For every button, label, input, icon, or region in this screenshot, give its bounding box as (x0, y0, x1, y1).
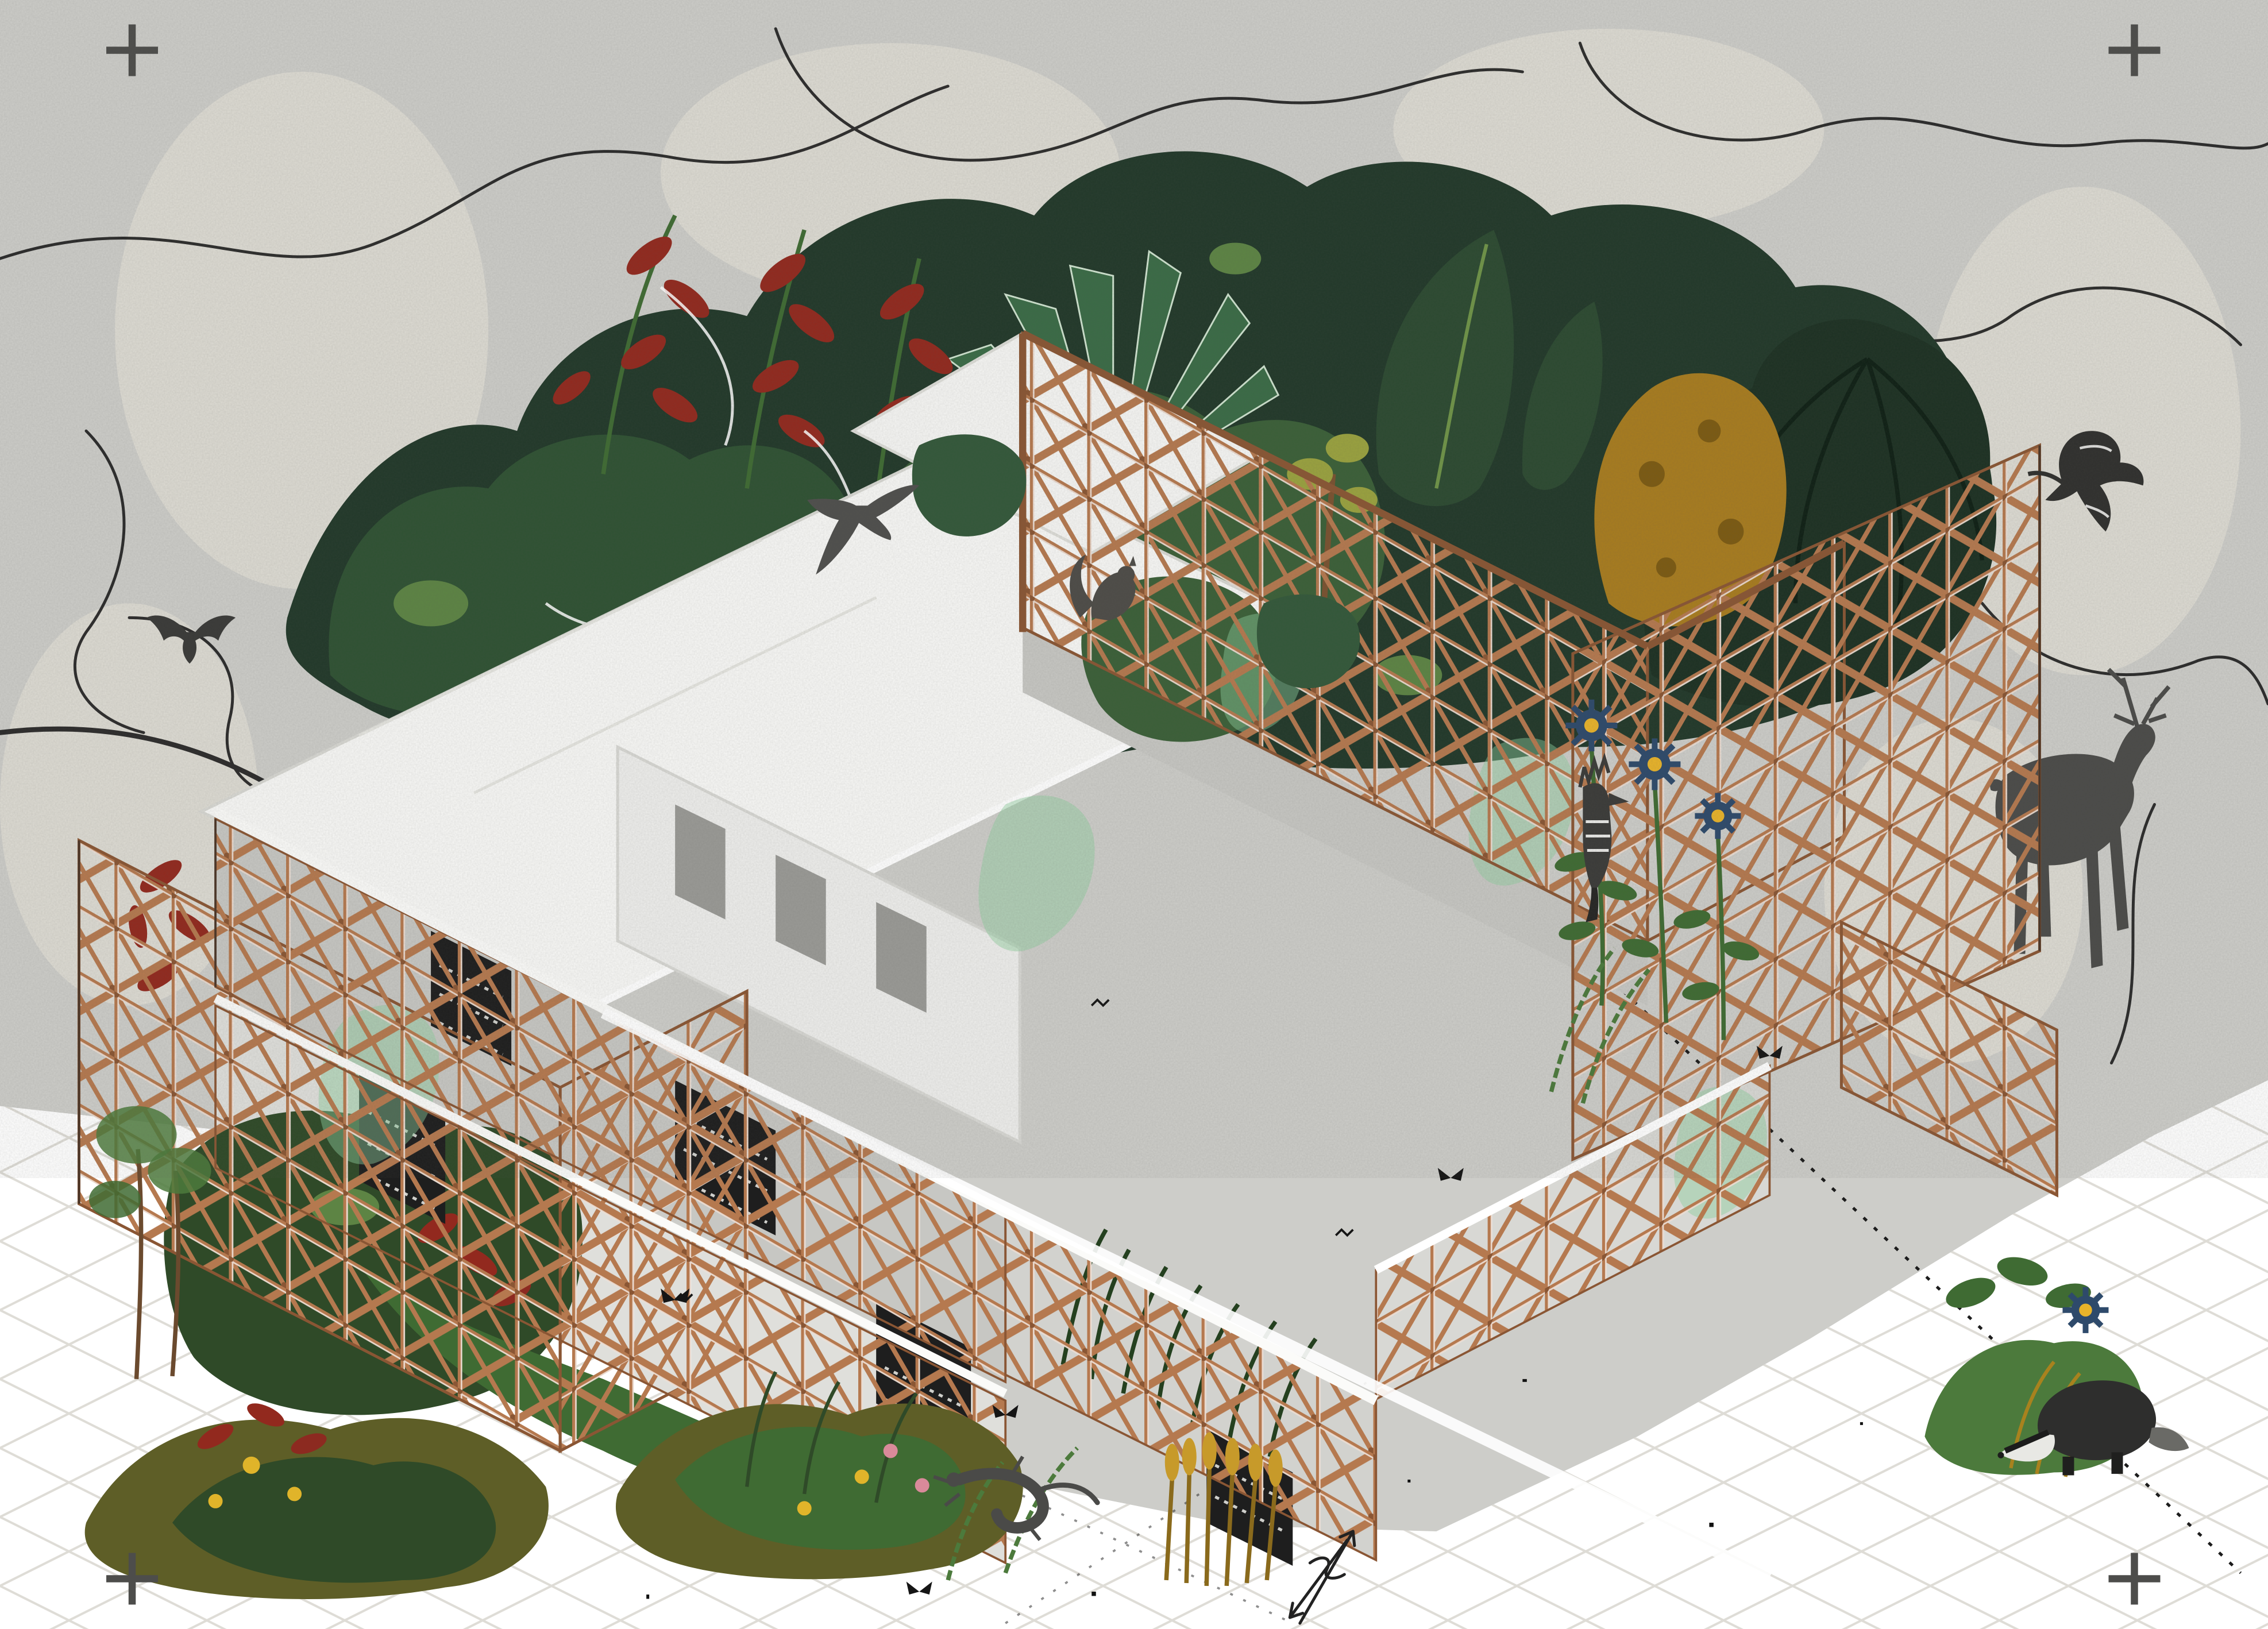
yellow-flower (209, 1494, 223, 1508)
tree-foliage (89, 1181, 141, 1218)
speck (1709, 1523, 1714, 1527)
yellow-flower (855, 1469, 869, 1484)
wheat-head (1268, 1449, 1283, 1487)
grain-texture (0, 0, 2268, 1178)
illustration-canvas (0, 0, 2268, 1629)
speck (1860, 1422, 1863, 1425)
pink-flower (915, 1478, 929, 1492)
stalk (1206, 1468, 1209, 1586)
badger-leg (2062, 1457, 2074, 1476)
wheat-head (1225, 1438, 1240, 1475)
pink-flower (884, 1443, 898, 1458)
lizard-head (947, 1472, 961, 1487)
speck (646, 1595, 649, 1599)
speck (1407, 1480, 1410, 1483)
speck (1091, 1592, 1096, 1596)
yellow-flower (287, 1487, 302, 1501)
wheat-head (1202, 1432, 1217, 1469)
wheat-head (1248, 1443, 1263, 1481)
wheat-head (1165, 1443, 1179, 1481)
stalk (1186, 1474, 1189, 1583)
yellow-flower (797, 1501, 812, 1515)
yellow-flower (243, 1457, 260, 1474)
speck (1522, 1379, 1527, 1382)
badger-leg (2111, 1452, 2123, 1474)
daisy-center (2079, 1304, 2092, 1317)
wheat-head (1182, 1438, 1197, 1475)
badger-nose (1997, 1452, 2004, 1458)
